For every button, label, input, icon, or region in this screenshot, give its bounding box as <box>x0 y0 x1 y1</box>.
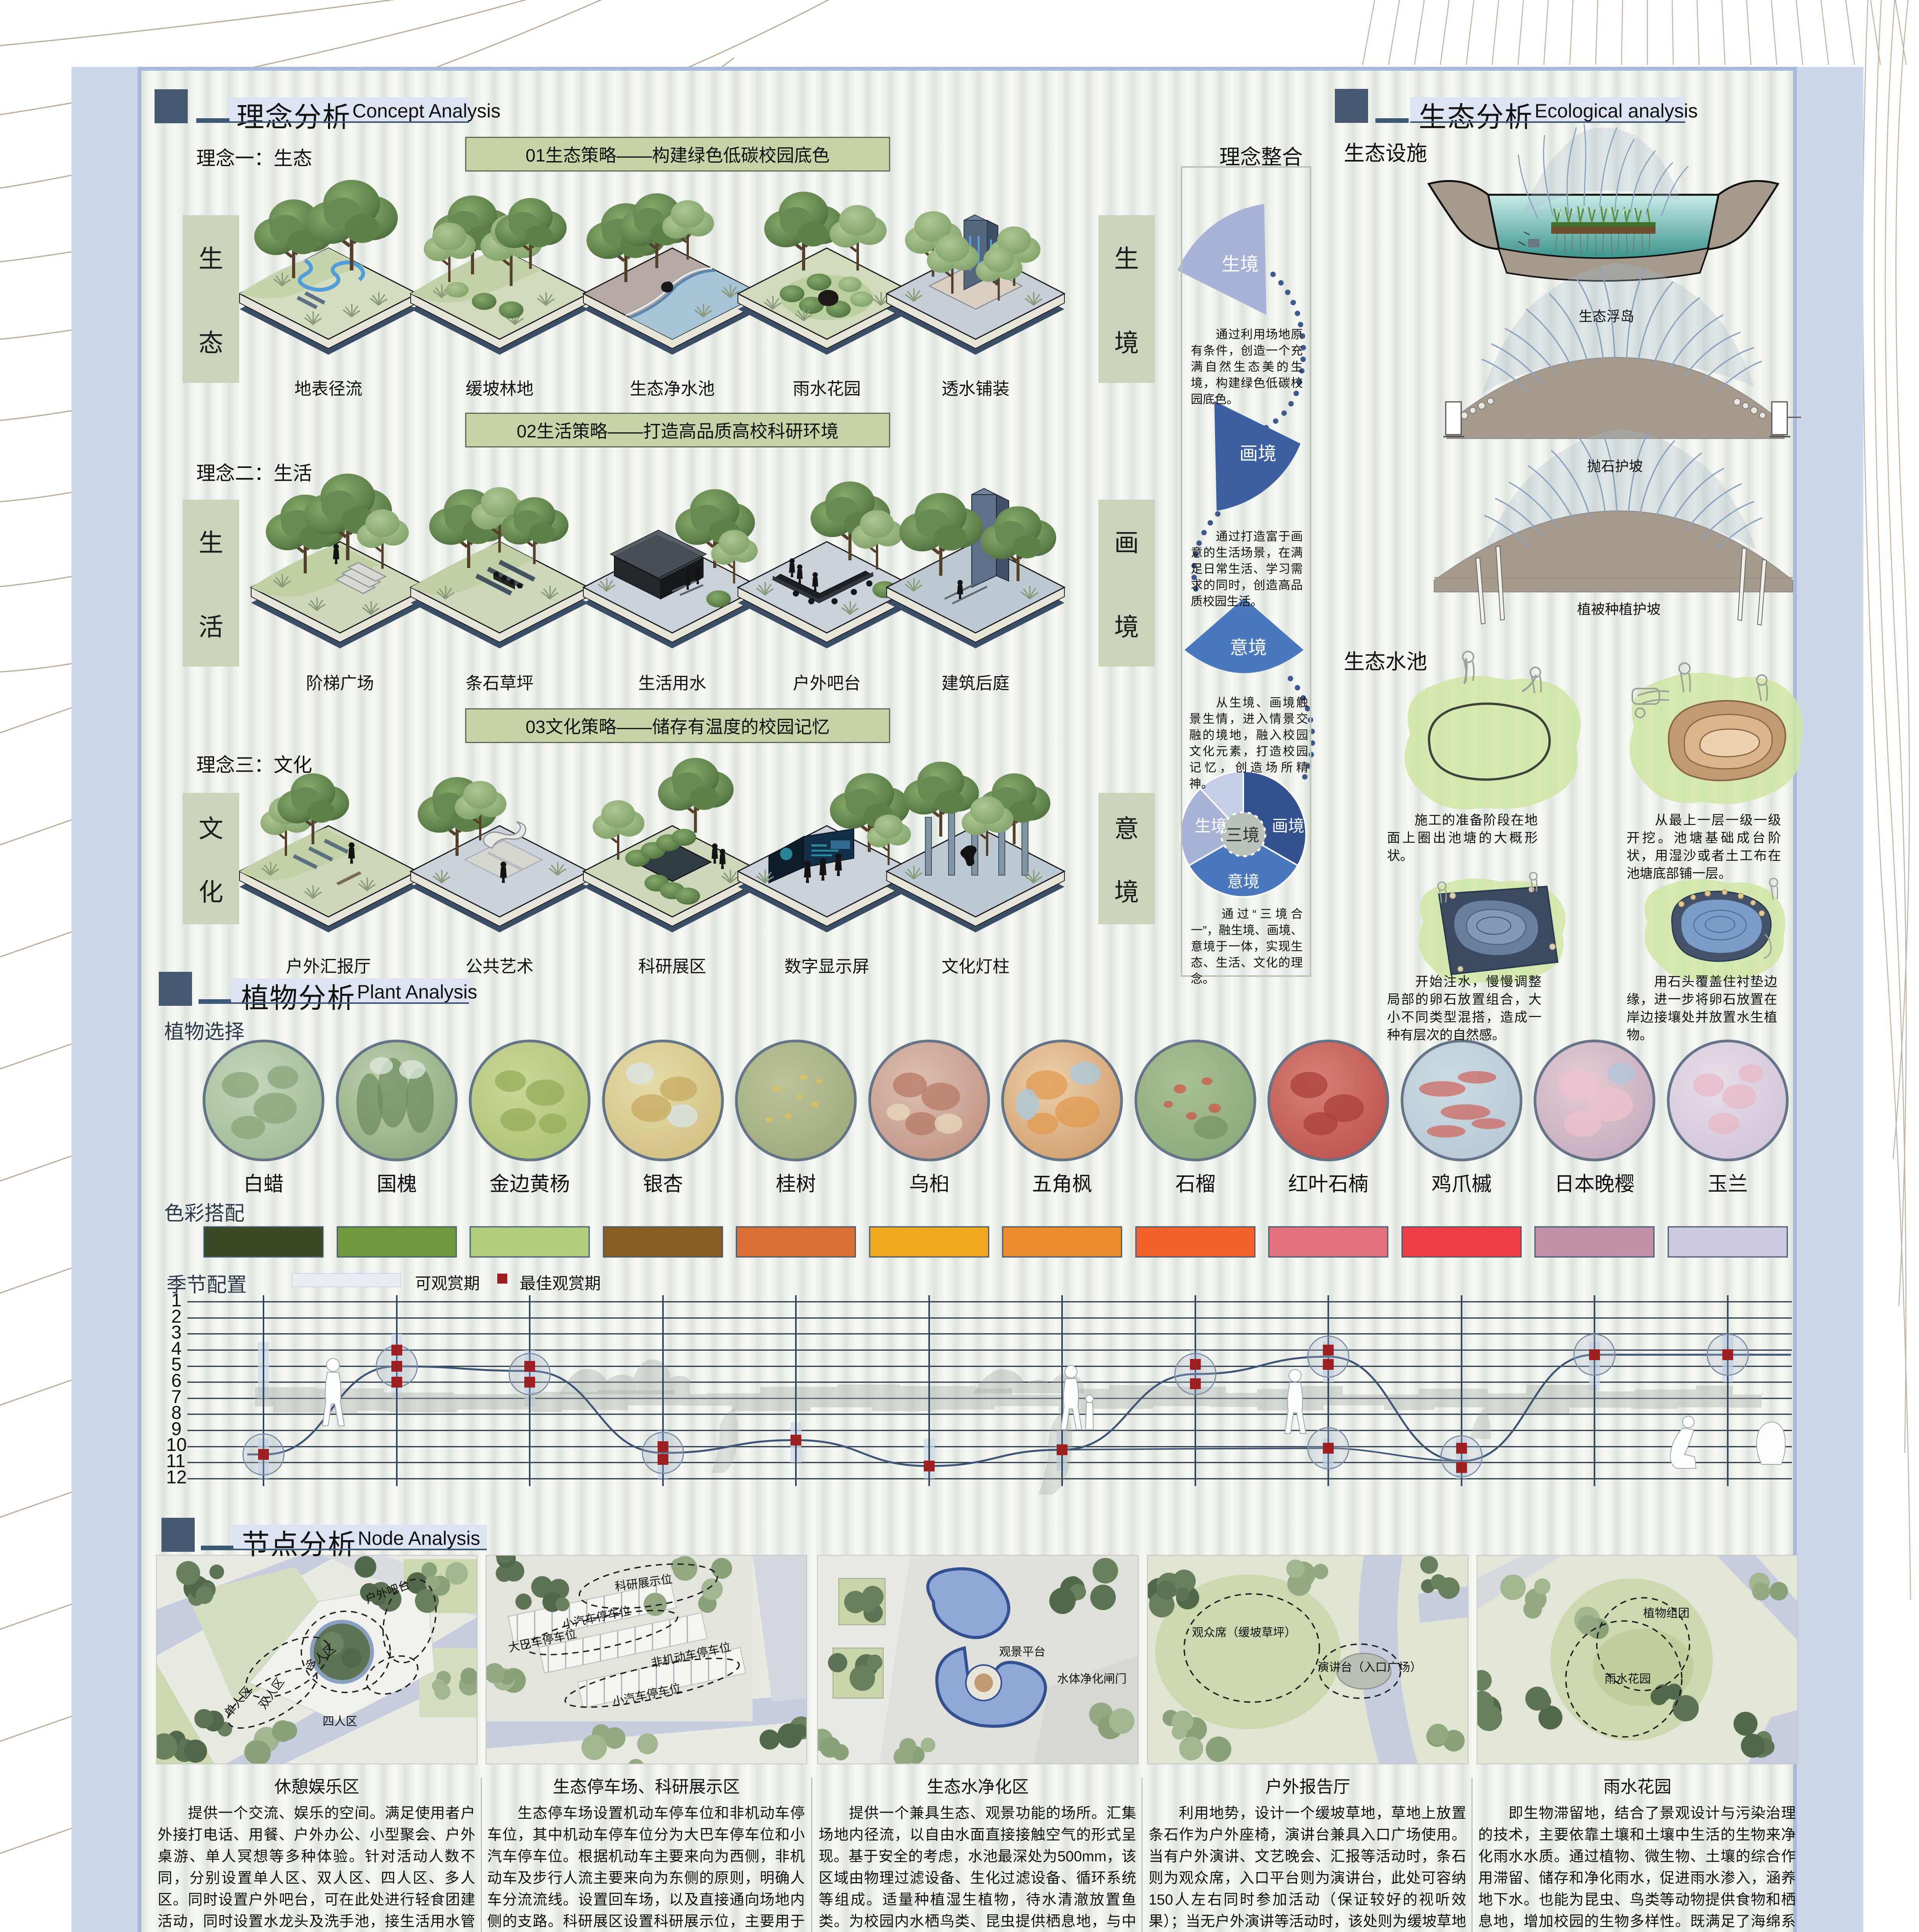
svg-text:四人区: 四人区 <box>323 1715 357 1728</box>
svg-text:雨水花园: 雨水花园 <box>1605 1673 1651 1685</box>
svg-text:植物组团: 植物组团 <box>1643 1607 1690 1620</box>
svg-text:观景平台: 观景平台 <box>999 1646 1045 1658</box>
svg-text:演讲台（入口广场）: 演讲台（入口广场） <box>1317 1661 1422 1674</box>
svg-text:水体净化闸门: 水体净化闸门 <box>1057 1673 1127 1685</box>
svg-text:观众席（缓坡草坪）: 观众席（缓坡草坪） <box>1192 1626 1296 1639</box>
